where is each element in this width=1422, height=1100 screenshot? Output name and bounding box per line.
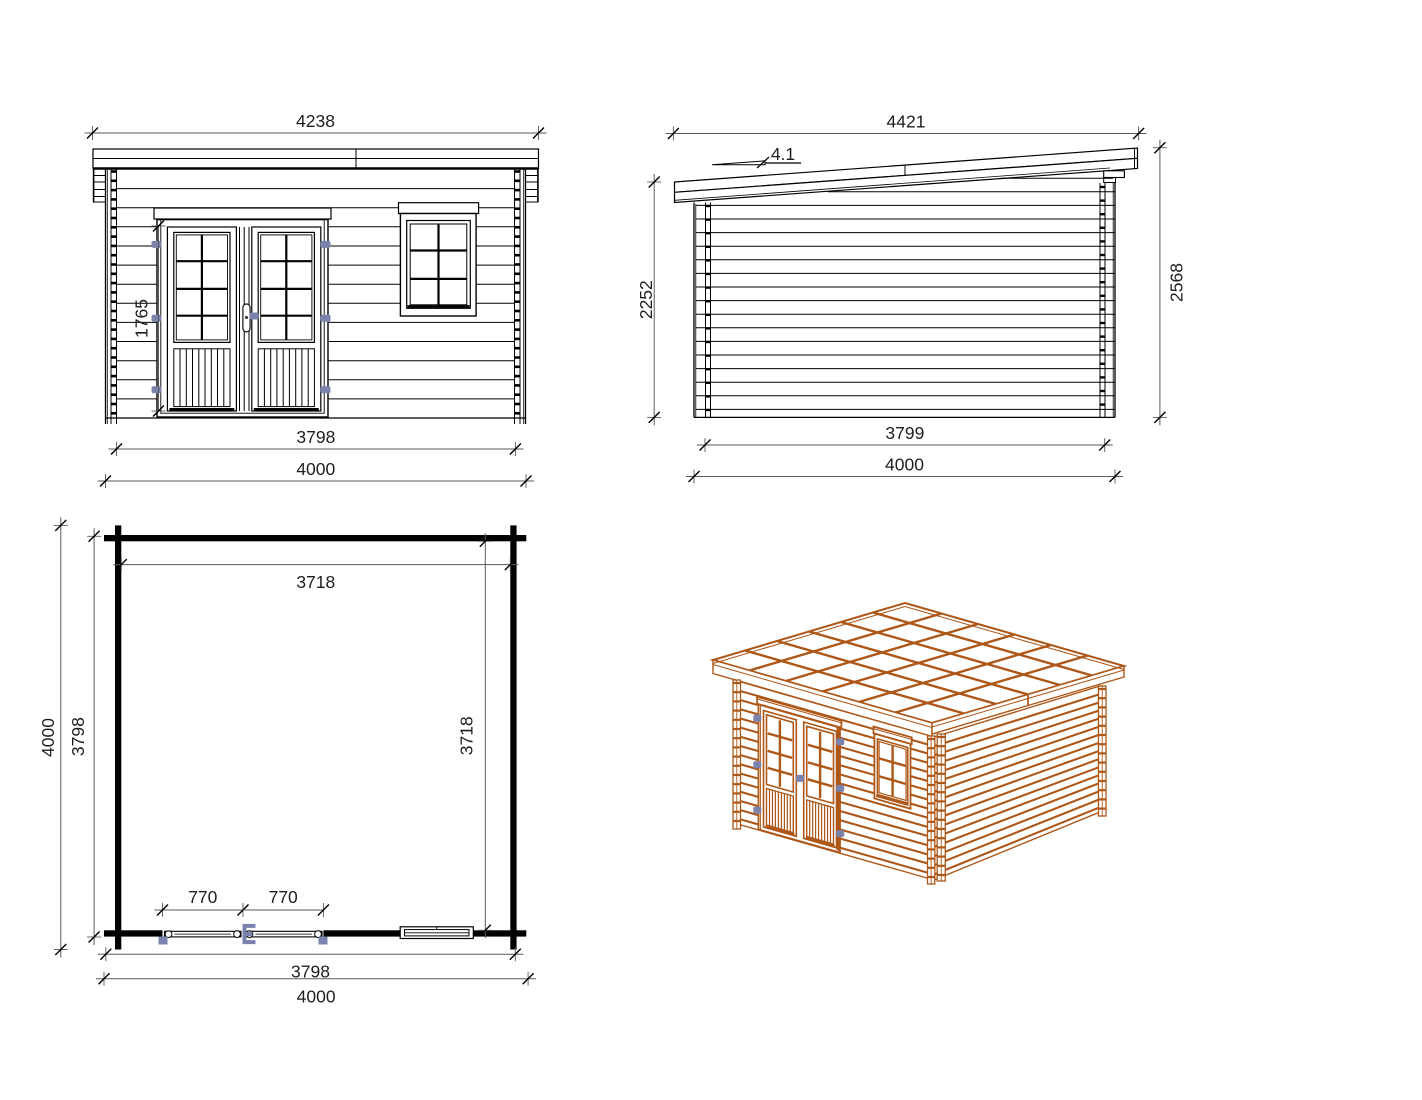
svg-text:4000: 4000 (296, 459, 335, 479)
svg-text:4421: 4421 (887, 112, 926, 132)
svg-text:2252: 2252 (636, 280, 656, 319)
svg-text:4.1: 4.1 (771, 144, 795, 164)
svg-text:3799: 3799 (885, 423, 924, 443)
svg-text:3798: 3798 (68, 717, 88, 756)
svg-text:4000: 4000 (38, 718, 58, 757)
svg-text:1765: 1765 (132, 299, 152, 338)
svg-text:2568: 2568 (1167, 263, 1187, 302)
svg-text:4000: 4000 (885, 455, 924, 475)
svg-text:3718: 3718 (296, 572, 335, 592)
svg-text:4238: 4238 (296, 111, 335, 131)
svg-text:3798: 3798 (296, 427, 335, 447)
svg-text:4000: 4000 (297, 986, 336, 1006)
svg-text:770: 770 (269, 887, 298, 907)
svg-text:770: 770 (188, 887, 217, 907)
svg-text:3718: 3718 (457, 716, 477, 755)
